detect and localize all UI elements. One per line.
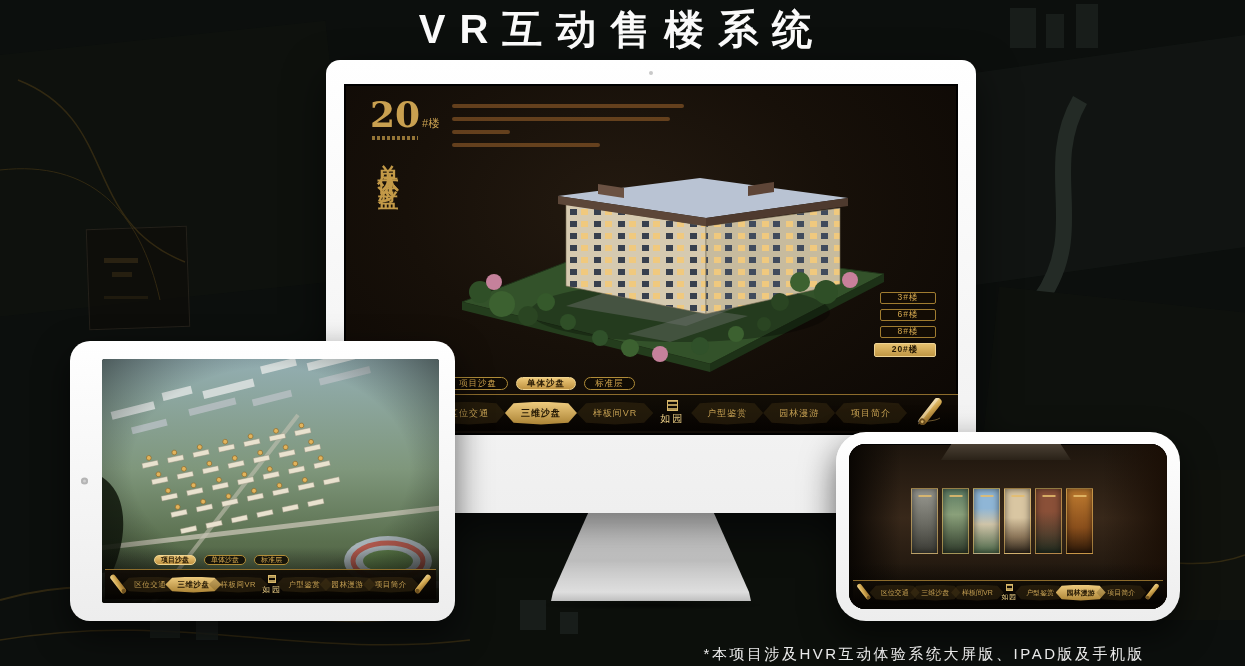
section-title-vertical: 单体沙盘 [374,148,402,266]
tablet-subtabs: 项目沙盘 单体沙盘 标准层 [154,555,289,565]
ceiling-beam-decor [941,444,1071,460]
nav-item-model-room-vr[interactable]: 样板间VR [216,578,261,592]
nav-item-garden-tour[interactable]: 园林漫游 [1063,586,1099,600]
tablet-screen: 项目沙盘 单体沙盘 标准层 区位交通 三维沙盘 样板间VR 如园 [102,359,439,603]
floor-button-3[interactable]: 3#楼 [880,292,936,304]
subtab-standard-floor[interactable]: 标准层 [254,555,289,565]
nav-item-project-intro[interactable]: 项目简介 [1103,586,1139,600]
brand-logo: 如园 [660,400,684,426]
nav-item-model-room-vr[interactable]: 样板间VR [958,586,997,600]
description-line [452,104,684,108]
scene-gallery [911,488,1093,554]
nav-item-floorplans[interactable]: 户型鉴赏 [698,403,756,424]
brand-logo-icon [268,575,276,583]
monitor-subtabs: 项目沙盘 单体沙盘 标准层 [448,377,635,390]
brand-logo: 如园 [1001,584,1017,602]
nav-item-garden-tour[interactable]: 园林漫游 [327,578,369,592]
nav-item-3d-sandbox[interactable]: 三维沙盘 [917,586,953,600]
phone-screen: 区位交通 三维沙盘 样板间VR 如园 户型鉴赏 园林漫游 项目简介 [849,444,1167,609]
building-model-illustration[interactable] [448,134,898,392]
nav-item-location[interactable]: 区位交通 [877,586,913,600]
scroll-icon[interactable] [914,398,944,428]
subtab-single-building[interactable]: 单体沙盘 [516,377,576,390]
tablet-nav-bar: 区位交通 三维沙盘 样板间VR 如园 户型鉴赏 园林漫游 项目简介 [105,569,436,599]
building-number: 20 [370,93,420,135]
gallery-panel[interactable] [942,488,969,554]
gallery-panel[interactable] [1035,488,1062,554]
tablet-mockup: 项目沙盘 单体沙盘 标准层 区位交通 三维沙盘 样板间VR 如园 [70,341,455,621]
subtab-standard-floor[interactable]: 标准层 [584,377,635,390]
nav-item-project-intro[interactable]: 项目简介 [370,578,412,592]
floor-button-20[interactable]: 20#楼 [874,343,936,357]
phone-mockup: 区位交通 三维沙盘 样板间VR 如园 户型鉴赏 园林漫游 项目简介 [836,432,1180,621]
page-title: VR互动售楼系统 [0,2,1245,57]
brand-logo-icon [1006,584,1013,591]
monitor-stand-shadow [540,600,762,610]
nav-item-project-intro[interactable]: 项目简介 [842,403,900,424]
floor-button-8[interactable]: 8#楼 [880,326,936,338]
masterplan-aerial-illustration[interactable] [102,359,439,603]
nav-item-model-room-vr[interactable]: 样板间VR [584,403,647,424]
nav-item-location[interactable]: 区位交通 [129,578,171,592]
gallery-panel[interactable] [973,488,1000,554]
monitor-camera-dot [649,71,653,75]
footnote-caption: *本项目涉及HVR互动体验系统大屏版、IPAD版及手机版 [704,645,1145,664]
subtab-project-sandbox[interactable]: 项目沙盘 [448,377,508,390]
nav-item-garden-tour[interactable]: 园林漫游 [770,403,828,424]
gallery-panel[interactable] [1004,488,1031,554]
promo-stage: VR互动售楼系统 20#楼 单体沙盘 [0,0,1245,666]
nav-item-floorplans[interactable]: 户型鉴赏 [1022,586,1058,600]
subtab-single-building[interactable]: 单体沙盘 [204,555,246,565]
building-suffix: #楼 [422,117,439,129]
floor-button-6[interactable]: 6#楼 [880,309,936,321]
section-header: 20#楼 单体沙盘 [370,96,439,266]
gallery-panel[interactable] [911,488,938,554]
nav-item-3d-sandbox[interactable]: 三维沙盘 [172,578,214,592]
gallery-panel[interactable] [1066,488,1093,554]
phone-nav-bar: 区位交通 三维沙盘 样板间VR 如园 户型鉴赏 园林漫游 项目简介 [853,580,1163,604]
brand-logo-icon [667,400,678,411]
description-line [452,117,670,121]
tablet-camera-dot [81,478,88,485]
floor-button-group: 3#楼 6#楼 8#楼 20#楼 [874,292,936,357]
nav-item-3d-sandbox[interactable]: 三维沙盘 [512,403,570,424]
decorative-english-caption [372,136,418,140]
subtab-project-sandbox[interactable]: 项目沙盘 [154,555,196,565]
nav-item-floorplans[interactable]: 户型鉴赏 [283,578,325,592]
